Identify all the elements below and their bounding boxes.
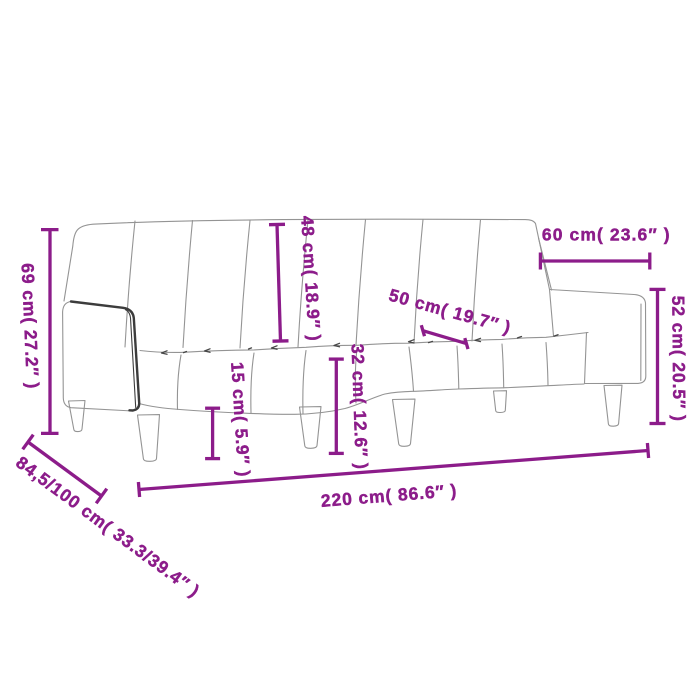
svg-text:60 cm( 23.6″ ): 60 cm( 23.6″ ) xyxy=(542,225,671,245)
svg-text:52 cm( 20.5″ ): 52 cm( 20.5″ ) xyxy=(668,296,689,422)
